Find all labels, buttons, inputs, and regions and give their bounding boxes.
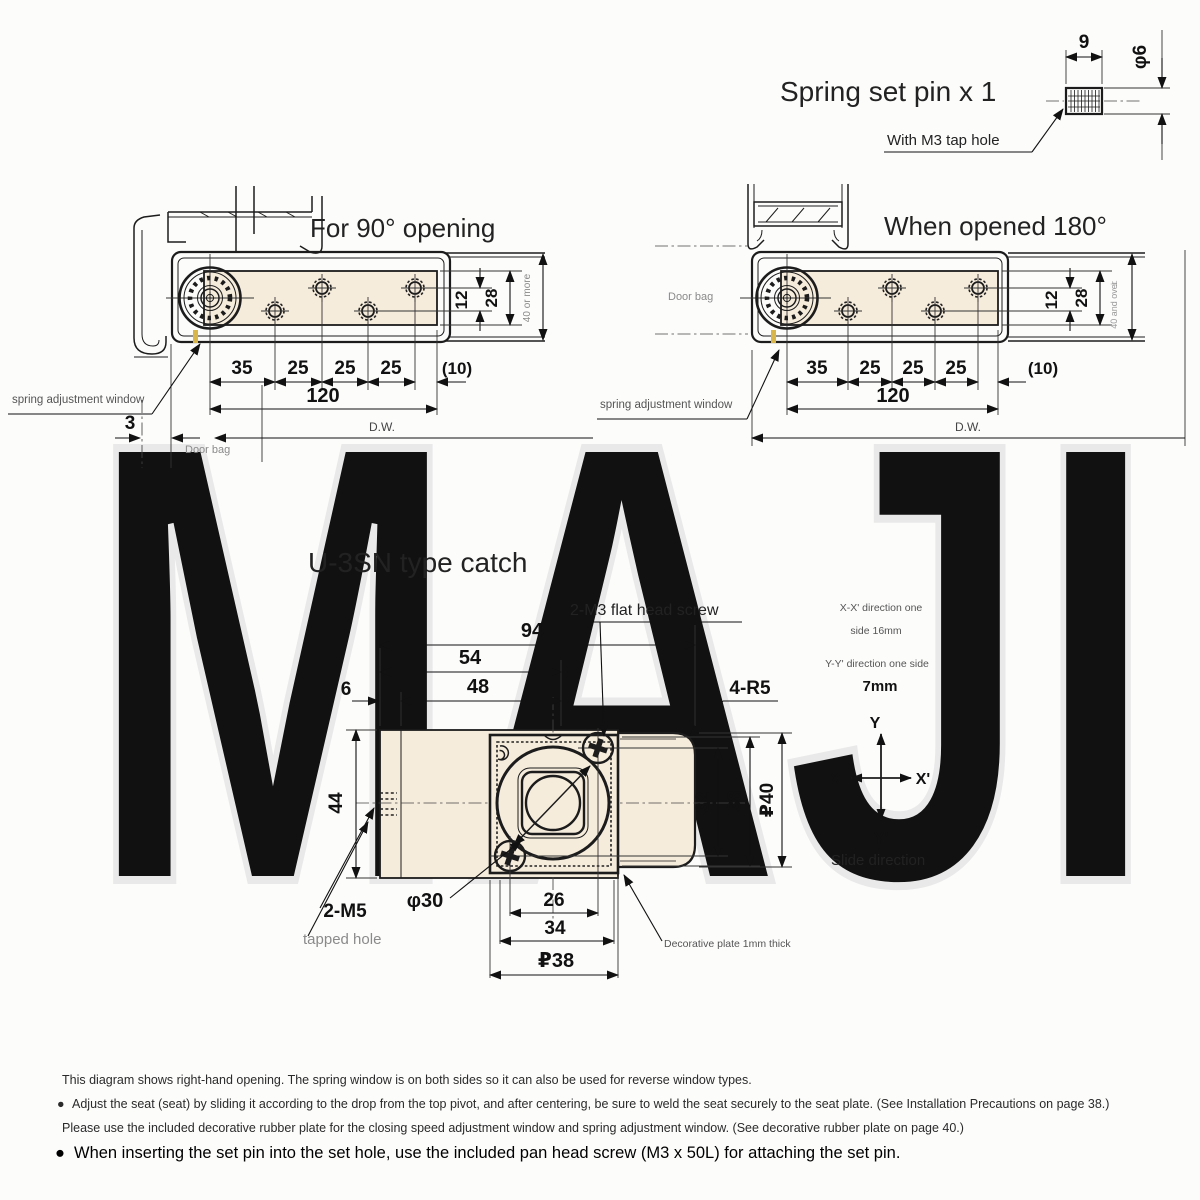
catch-plate xyxy=(490,728,618,876)
catch-dim-dia30: φ30 xyxy=(407,890,444,912)
fig90-dim-3: 3 xyxy=(125,413,136,434)
fig180-spring-gear xyxy=(757,268,818,329)
catch-yy-note-1: Y-Y' direction one side xyxy=(825,658,929,670)
fig180-title: When opened 180° xyxy=(884,211,1107,241)
catch-tap-note: tapped hole xyxy=(303,931,381,948)
fig180-dim-25a: 25 xyxy=(859,358,881,379)
fig90-dw-label: D.W. xyxy=(369,420,395,434)
fig180-dw-label: D.W. xyxy=(955,420,981,434)
axis-x-label: X xyxy=(830,771,841,788)
fig90-dim-25a: 25 xyxy=(287,358,309,379)
spring-pin-note: With M3 tap hole xyxy=(887,132,1000,149)
fig90-spring-window-label: spring adjustment window xyxy=(12,394,145,406)
slide-direction-label: Slide direction xyxy=(831,852,925,869)
technical-drawing-page: MAJI Spring set pin x 1 With M3 tap hole… xyxy=(0,0,1200,1200)
note-line-4: When inserting the set pin into the set … xyxy=(74,1144,900,1162)
catch-xx-note-2: side 16mm xyxy=(850,625,902,637)
catch-dim-34: 34 xyxy=(544,918,566,939)
catch-dim-38: 38 xyxy=(725,790,746,811)
fig180-datum-mark: ⊥ xyxy=(1109,280,1119,288)
fig180-dim-25b: 25 xyxy=(902,358,924,379)
catch-screw-label: 2-M3 flat head screw xyxy=(570,602,719,619)
catch-title: U-3SN type catch xyxy=(308,547,527,578)
pin-length-dim: 9 xyxy=(1079,32,1090,53)
fig180-dim-120: 120 xyxy=(876,385,909,407)
axis-y-label: Y xyxy=(870,715,881,732)
watermark-text: MAJI xyxy=(86,312,1158,1014)
fig90-dim-10: (10) xyxy=(442,359,472,378)
fig90-spring-window-slit xyxy=(193,330,198,343)
fig90-dim-12: 12 xyxy=(452,291,471,310)
spring-pin-figure: Spring set pin x 1 With M3 tap hole 9 φ6 xyxy=(780,30,1170,160)
fig180-dim-12: 12 xyxy=(1042,291,1061,310)
catch-dim-94: 94 xyxy=(521,620,544,642)
note-line-2: Adjust the seat (seat) by sliding it acc… xyxy=(72,1097,1109,1111)
catch-dim-6: 6 xyxy=(341,679,352,700)
set-pin-drawing xyxy=(1046,88,1140,114)
fig180-dim-25c: 25 xyxy=(945,358,967,379)
fig90-dim-120: 120 xyxy=(306,385,339,407)
fig180-door-section xyxy=(748,184,848,249)
note-bullet-4: ● xyxy=(55,1144,65,1162)
fig180-door-bag-label: Door bag xyxy=(668,291,713,303)
fig180-dim-28: 28 xyxy=(1072,289,1091,308)
fig180-dim-10: (10) xyxy=(1028,359,1058,378)
drawing-svg: MAJI Spring set pin x 1 With M3 tap hole… xyxy=(0,0,1200,1200)
axis-y-prime-label: Y' xyxy=(874,830,888,847)
catch-dim-48: 48 xyxy=(467,676,489,698)
note-line-1: This diagram shows right-hand opening. T… xyxy=(62,1073,752,1087)
catch-dim-sq38: ₽38 xyxy=(538,950,574,972)
fig90-dim-28: 28 xyxy=(482,289,501,308)
catch-dim-40: ₽40 xyxy=(757,783,778,817)
fig90-title: For 90° opening xyxy=(310,213,495,243)
catch-dim-44: 44 xyxy=(326,792,347,814)
fig90-dim-25c: 25 xyxy=(380,358,402,379)
catch-xx-note-1: X-X' direction one xyxy=(840,602,923,614)
pin-diameter-dim: φ6 xyxy=(1130,45,1151,69)
fig180-dim-35: 35 xyxy=(806,358,828,379)
fig90-clearance-label: 40 or more xyxy=(522,273,533,322)
notes: This diagram shows right-hand opening. T… xyxy=(55,1073,1109,1162)
fig90-dim-35: 35 xyxy=(231,358,253,379)
catch-yy-note-2: 7mm xyxy=(862,678,897,695)
axis-x-prime-label: X' xyxy=(916,771,930,788)
fig180-spring-window-slit xyxy=(771,330,776,343)
fig180-spring-window-label: spring adjustment window xyxy=(600,399,733,411)
fig90-dim-25b: 25 xyxy=(334,358,356,379)
spring-pin-title: Spring set pin x 1 xyxy=(780,76,996,107)
catch-plate-note: Decorative plate 1mm thick xyxy=(664,938,791,950)
catch-dim-32: 32 xyxy=(693,791,714,812)
note-line-3: Please use the included decorative rubbe… xyxy=(62,1121,964,1135)
note-bullet-2: ● xyxy=(57,1097,65,1111)
catch-dim-26: 26 xyxy=(543,890,564,911)
catch-dim-54: 54 xyxy=(459,647,482,669)
catch-tap-label: 2-M5 xyxy=(323,901,367,922)
catch-corner-radius-label: 4-R5 xyxy=(729,678,771,699)
fig90-door-bag-label: Door bag xyxy=(185,444,230,456)
fig90-spring-gear xyxy=(180,268,241,329)
